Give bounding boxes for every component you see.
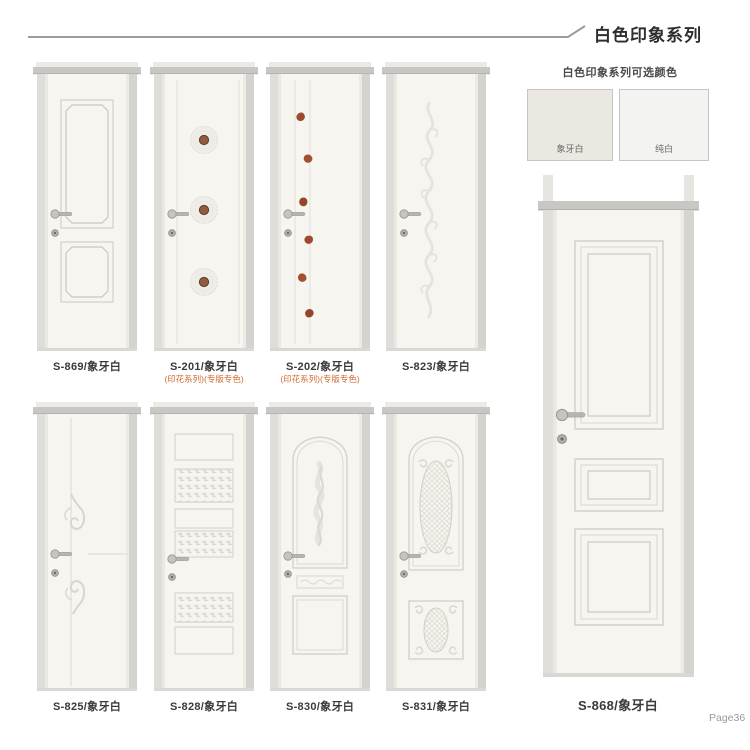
color-options-panel: 白色印象系列可选颜色 象牙白 纯白 (527, 64, 713, 161)
door-series-note: (印花系列)(专版专色) (259, 374, 381, 384)
door-model-label: S-202/象牙白 (259, 358, 381, 374)
door-image-s825 (28, 396, 146, 696)
door-model-label: S-830/象牙白 (259, 698, 381, 714)
swatch-ivory-white: 象牙白 (527, 89, 613, 161)
door-model-label: S-831/象牙白 (375, 698, 497, 714)
color-options-title: 白色印象系列可选颜色 (527, 64, 713, 80)
lace-medallion-icon (190, 268, 218, 296)
lace-medallion-icon (190, 196, 218, 224)
door-image-s869 (28, 56, 146, 356)
catalog-page: 白色印象系列 白色印象系列可选颜色 象牙白 纯白 (0, 0, 750, 750)
swatch-pure-white: 纯白 (619, 89, 709, 161)
door-card-s201: S-201/象牙白 (印花系列)(专版专色) (143, 56, 265, 384)
swatch-label: 纯白 (620, 142, 708, 155)
door-card-s202: S-202/象牙白 (印花系列)(专版专色) (259, 56, 381, 384)
door-card-s828: S-828/象牙白 (143, 396, 265, 714)
swatch-label: 象牙白 (528, 142, 612, 155)
door-image-s868 (531, 173, 706, 688)
door-model-label: S-823/象牙白 (375, 358, 497, 374)
door-card-s830: S-830/象牙白 (259, 396, 381, 714)
door-card-s869: S-869/象牙白 (26, 56, 148, 374)
door-card-s823: S-823/象牙白 (375, 56, 497, 374)
door-card-s831: S-831/象牙白 (375, 396, 497, 714)
featured-door-card-s868: S-868/象牙白 (527, 173, 709, 714)
door-model-label: S-201/象牙白 (143, 358, 265, 374)
door-image-s830 (261, 396, 379, 696)
door-model-label: S-825/象牙白 (26, 698, 148, 714)
door-series-note: (印花系列)(专版专色) (143, 374, 265, 384)
door-model-label: S-868/象牙白 (527, 695, 709, 714)
door-image-s202 (261, 56, 379, 356)
page-number: Page36 (709, 712, 745, 724)
door-image-s823 (377, 56, 495, 356)
door-image-s831 (377, 396, 495, 696)
lace-medallion-icon (190, 126, 218, 154)
page-title: 白色印象系列 (594, 21, 702, 46)
door-model-label: S-828/象牙白 (143, 698, 265, 714)
door-card-s825: S-825/象牙白 (26, 396, 148, 714)
door-image-s828 (145, 396, 263, 696)
door-model-label: S-869/象牙白 (26, 358, 148, 374)
door-image-s201 (145, 56, 263, 356)
